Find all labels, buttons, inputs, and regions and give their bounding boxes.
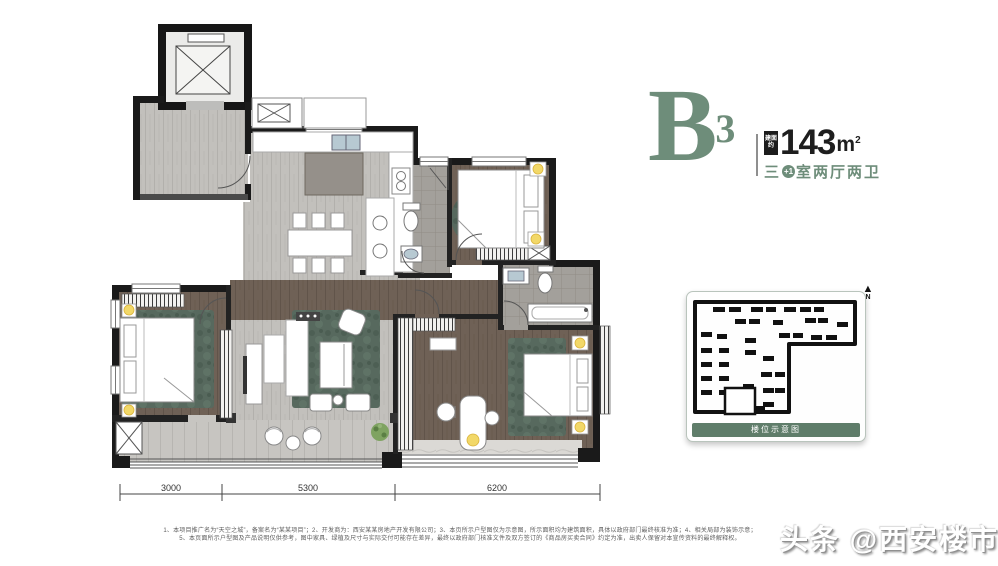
elevator-shaft <box>162 28 248 110</box>
north-arrow-icon: ▲ <box>860 284 876 294</box>
disclaimer-text: 1、本项目推广名为“天空之城”，备案名为“某某项目”；2、开发商为：西安某某房地… <box>150 528 770 544</box>
dim-3000: 3000 <box>161 483 181 493</box>
dim-5300: 5300 <box>298 483 318 493</box>
layout-suffix: 室两厅两卫 <box>796 164 881 181</box>
layout-prefix: 三 <box>764 164 781 181</box>
dimension-line <box>120 484 600 501</box>
dim-6200: 6200 <box>487 483 507 493</box>
toutiao-watermark: 头条 @西安楼市1 <box>780 518 998 558</box>
floor-plan-drawing: 3000 5300 6200 <box>100 8 620 508</box>
area-unit-m: m <box>836 133 855 156</box>
north-arrow: ▲ N <box>860 284 876 302</box>
disclaimer-line-1: 1、本项目推广名为“天空之城”，备案名为“某某项目”；2、开发商为：西安某某房地… <box>150 528 770 536</box>
area-unit: m2 <box>836 128 860 158</box>
north-label: N <box>860 294 876 302</box>
area-unit-sup: 2 <box>855 135 861 146</box>
floor-plan: 3000 5300 6200 <box>100 8 620 508</box>
bedroom-3 <box>120 304 194 417</box>
title-divider <box>756 134 758 176</box>
site-plan-map <box>687 292 863 420</box>
unit-letter: B <box>648 68 715 183</box>
unit-superscript: 3 <box>715 106 735 151</box>
dimension-labels: 3000 5300 6200 <box>161 483 507 493</box>
area-badge: 建面约 <box>764 131 778 155</box>
site-buildings <box>701 307 848 411</box>
disclaimer-line-2: 5、本页面所示户型图及产品说明仅供参考，图中家具、绿植及尺寸与实际交付可能存在差… <box>150 536 770 544</box>
site-boundary <box>695 302 855 412</box>
highlighted-building <box>725 388 755 414</box>
unit-info: 建面约 143 m2 三+1室两厅两卫 <box>764 128 881 182</box>
area-row: 建面约 143 m2 <box>764 128 881 158</box>
bedroom-2 <box>458 162 546 248</box>
unit-name: B3 <box>648 74 735 178</box>
area-value: 143 <box>780 128 835 158</box>
site-plan-card: 楼位示意图 <box>686 291 866 442</box>
layout-description: 三+1室两厅两卫 <box>764 161 881 182</box>
area-badge-line2: 约 <box>768 143 774 150</box>
site-plan-caption: 楼位示意图 <box>692 423 860 437</box>
layout-plus-one-badge: +1 <box>782 165 795 178</box>
area-badge-line1: 建面 <box>765 136 777 143</box>
dining-set <box>288 213 352 273</box>
